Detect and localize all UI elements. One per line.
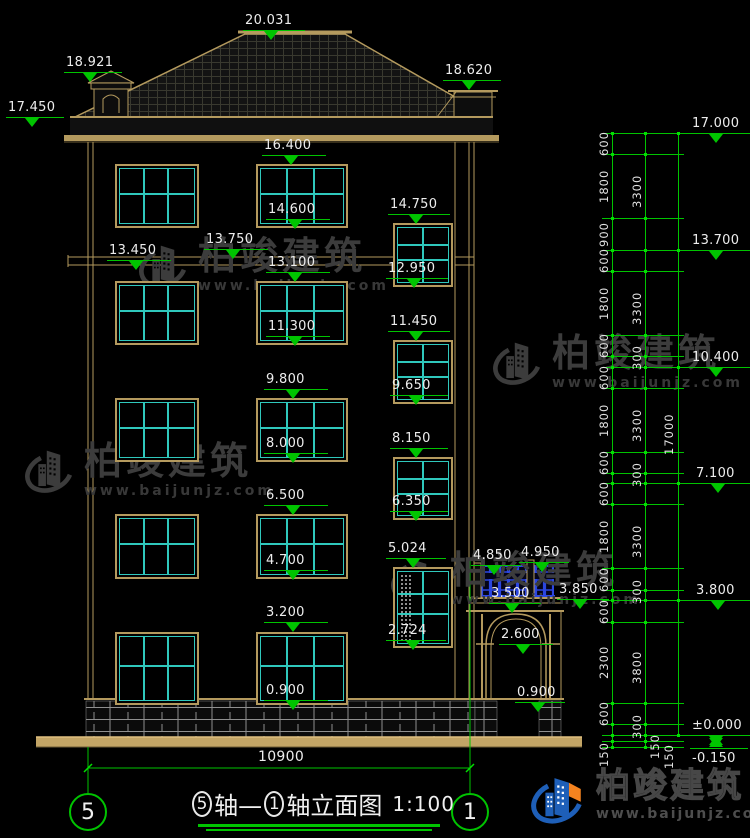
elevation-marker-triangle (573, 600, 587, 609)
dim-chain-tick (602, 590, 684, 591)
overall-width-dim-label: 10900 (258, 750, 304, 764)
window-glazing (260, 168, 344, 224)
dim-segment-label: 150 (648, 724, 662, 769)
dim-segment-label: 900 (597, 212, 611, 257)
window-mullion (286, 169, 288, 223)
dim-tick-dot (611, 599, 614, 602)
dim-segment-label: 600 (597, 121, 611, 166)
large-window (256, 281, 348, 345)
elevation-marker-triangle (409, 332, 423, 341)
window-transom (261, 193, 343, 195)
elevation-marker-line (266, 219, 330, 220)
window-mullion (143, 519, 145, 574)
title-scale: 1:100 (392, 792, 455, 816)
window-transom (120, 427, 194, 429)
elevation-marker-line (386, 640, 446, 641)
elevation-marker-line (690, 735, 748, 736)
watermark: 柏竣建筑www.baijunjz.com (390, 550, 641, 608)
elevation-marker-triangle (535, 563, 549, 572)
dim-chain-tick (602, 622, 684, 623)
dim-chain-tick (602, 154, 684, 155)
window-glazing (119, 518, 195, 575)
dim-chain-tick (602, 724, 684, 725)
dim-tick-dot (611, 217, 614, 220)
watermark: 柏竣建筑www.baijunjz.com (24, 441, 275, 499)
window-transom (398, 493, 448, 495)
watermark-url: www.baijunjz.com (450, 592, 641, 608)
elevation-marker-line (264, 453, 328, 454)
balcony-balustrade (478, 566, 554, 597)
elevation-marker-value: 8.150 (392, 432, 431, 446)
dim-tick-dot (677, 482, 680, 485)
large-window (256, 398, 348, 462)
elevation-marker-triangle (407, 279, 421, 288)
dim-segment-label: 600 (597, 471, 611, 516)
elevation-marker-value: 11.300 (268, 320, 315, 334)
dim-chain-vertical (678, 133, 679, 735)
elevation-marker-value: 20.031 (245, 14, 292, 28)
window-mullion (286, 519, 288, 574)
watermark-icon (24, 441, 78, 499)
dim-tick-dot (611, 734, 614, 737)
eave-fascia (70, 117, 493, 136)
dim-segment-label: 300 (630, 452, 644, 497)
dim-tick-dot (611, 472, 614, 475)
dim-tick-dot (644, 249, 647, 252)
elevation-marker-line (262, 155, 326, 156)
dim-chain-tick (602, 504, 684, 505)
elevation-marker-triangle (286, 571, 300, 580)
dim-segment-label: 600 (597, 355, 611, 400)
elevation-marker-line (6, 117, 64, 118)
elevation-marker-triangle (25, 118, 39, 127)
railing-post-left (474, 563, 481, 598)
title-underline-1 (198, 824, 440, 827)
right-roof-turret (454, 92, 492, 117)
window-transom (261, 427, 343, 429)
small-window (393, 567, 453, 648)
dim-tick-dot (644, 621, 647, 624)
dim-tick-dot (644, 355, 647, 358)
dim-chain-tick (602, 741, 684, 742)
window-mullion (313, 403, 315, 457)
window-glazing (260, 402, 344, 458)
dim-segment-label: 1800 (597, 158, 611, 214)
window-transom (398, 613, 448, 615)
window-glazing (119, 285, 195, 341)
elevation-marker-triangle (288, 220, 302, 229)
elevation-marker-line (264, 700, 328, 701)
dim-segment-label: 1800 (597, 508, 611, 564)
elevation-marker-triangle (83, 73, 97, 82)
large-window (256, 632, 348, 705)
chimney-cap (88, 71, 134, 83)
window-glazing (119, 402, 195, 458)
elevation-marker-value: 7.100 (696, 467, 735, 481)
dim-tick-dot (644, 482, 647, 485)
elevation-marker-line (690, 748, 748, 749)
dim-tick-dot (677, 599, 680, 602)
dim-tick-dot (677, 734, 680, 737)
elevation-marker-line (243, 30, 305, 31)
elevation-marker-value: 16.400 (264, 139, 311, 153)
drawing-title: 5 轴— 1 轴立面图 1:100 (190, 786, 455, 821)
stone-base (86, 701, 475, 737)
watermark-name: 柏竣建筑 (84, 441, 275, 481)
elevation-marker-value: 8.000 (266, 437, 305, 451)
window-mullion (143, 169, 145, 223)
window-mullion (313, 519, 315, 574)
window-mullion (167, 403, 169, 457)
small-window (393, 340, 453, 404)
baijun-logo-icon (530, 768, 588, 830)
elevation-marker-line (264, 622, 328, 623)
title-text-mid: 轴— (214, 786, 262, 821)
large-window (115, 632, 199, 705)
railing-post-right (527, 560, 534, 598)
elevation-marker-triangle (286, 623, 300, 632)
elevation-marker-value: 17.000 (692, 117, 739, 131)
elevation-marker-line (264, 570, 328, 571)
dim-segment-label: 3300 (630, 163, 644, 219)
dim-segment-label: 1800 (597, 392, 611, 448)
chimney-body (94, 89, 128, 117)
window-glazing (397, 344, 449, 400)
elevation-marker-value: 18.620 (445, 64, 492, 78)
dim-segment-label: 3300 (630, 280, 644, 336)
dim-tick-dot (644, 217, 647, 220)
axis-bubble-5: 5 (69, 793, 107, 831)
elevation-marker-line (388, 214, 450, 215)
elevation-marker-value: 14.600 (268, 203, 315, 217)
elevation-marker-value: 3.500 (491, 587, 530, 601)
window-glazing (397, 461, 449, 516)
window-mullion (313, 637, 315, 700)
window-mullion (167, 519, 169, 574)
dim-chain-tick (602, 367, 750, 368)
elevation-marker-value: 3.850 (559, 583, 598, 597)
elevation-marker-value: 9.800 (266, 373, 305, 387)
dim-tick-dot (644, 334, 647, 337)
elevation-marker-line (515, 702, 565, 703)
elevation-marker-triangle (709, 736, 723, 745)
dim-tick-dot (611, 249, 614, 252)
window-glazing (260, 636, 344, 701)
large-window (115, 164, 199, 228)
window-mullion (422, 462, 424, 515)
elevation-marker-value: 5.024 (388, 542, 427, 556)
elevation-marker-value: 6.500 (266, 489, 305, 503)
watermark-icon (138, 236, 192, 294)
elevation-marker-line (694, 483, 748, 484)
window-transom (261, 543, 343, 545)
elevation-marker-value: 18.921 (66, 56, 113, 70)
watermark-url: www.baijunjz.com (552, 375, 743, 391)
window-mullion (286, 286, 288, 340)
porch-columns (482, 614, 550, 698)
elevation-marker-line (390, 395, 448, 396)
elevation-marker-triangle (487, 566, 501, 575)
large-window (256, 514, 348, 579)
dim-segment-label: 17000 (662, 401, 676, 468)
dim-tick-dot (644, 366, 647, 369)
elevation-marker-value: 6.350 (392, 495, 431, 509)
dim-segment-label: 600 (597, 440, 611, 485)
dim-tick-dot (644, 472, 647, 475)
watermark-name: 柏竣建筑 (198, 236, 389, 276)
elevation-marker-triangle (409, 396, 423, 405)
window-transom (261, 310, 343, 312)
elevation-marker-line (690, 367, 748, 368)
elevation-marker-line (386, 558, 446, 559)
window-transom (120, 310, 194, 312)
dim-tick-dot (611, 621, 614, 624)
dim-tick-dot (611, 740, 614, 743)
window-mullion (143, 403, 145, 457)
elevation-marker-value: 4.950 (521, 546, 560, 560)
elevation-marker-triangle (286, 454, 300, 463)
dim-segment-label: 300 (630, 704, 644, 749)
elevation-marker-value: 0.900 (517, 686, 556, 700)
elevation-marker-value: 17.450 (8, 101, 55, 115)
elevation-marker-line (557, 599, 609, 600)
window-glazing (260, 518, 344, 575)
elevation-marker-value: 4.850 (473, 549, 512, 563)
dim-chain-vertical (645, 133, 646, 747)
dim-chain-tick (602, 133, 750, 134)
dim-segment-label: 2300 (597, 634, 611, 690)
dim-tick-dot (677, 366, 680, 369)
elevation-marker-line (390, 511, 448, 512)
dim-chain-tick (602, 600, 750, 601)
dim-tick-dot (611, 567, 614, 570)
elevation-marker-value: ±0.000 (692, 719, 742, 733)
pedestal-right (539, 701, 561, 737)
window-mullion (167, 286, 169, 340)
elevation-marker-triangle (531, 703, 545, 712)
elevation-marker-value: 4.700 (266, 554, 305, 568)
dim-chain-tick (602, 356, 684, 357)
dim-segment-label: 600 (597, 557, 611, 602)
building-structure-drawing (0, 0, 750, 838)
dim-tick-dot (611, 355, 614, 358)
window-transom (120, 543, 194, 545)
dim-tick-dot (644, 740, 647, 743)
dim-tick-dot (611, 702, 614, 705)
elevation-marker-triangle (286, 701, 300, 710)
entrance-arch (486, 614, 546, 698)
dimension-chain-layer: 6001800900600180060030060018006003006001… (0, 0, 750, 838)
watermark-icon (492, 333, 546, 391)
elevation-marker-triangle (709, 738, 723, 747)
dim-segment-label: 1800 (597, 275, 611, 331)
large-window (256, 164, 348, 228)
watermark: 柏竣建筑www.baijunjz.com (138, 236, 389, 294)
elevation-marker-triangle (264, 31, 278, 40)
watermark-name: 柏竣建筑 (450, 550, 641, 590)
elevation-marker-triangle (711, 484, 725, 493)
dim-tick-dot (677, 132, 680, 135)
elevation-marker-value: -0.150 (692, 752, 736, 766)
elevation-marker-triangle (709, 134, 723, 143)
dim-tick-dot (611, 334, 614, 337)
watermarks-layer: 柏竣建筑www.baijunjz.com柏竣建筑www.baijunjz.com… (0, 0, 750, 838)
elevation-marker-line (107, 260, 171, 261)
main-roof (75, 34, 490, 117)
elevation-marker-line (690, 133, 748, 134)
dim-tick-dot (644, 746, 647, 749)
elevation-marker-line (64, 72, 122, 73)
dim-chain-tick (602, 271, 684, 272)
elevation-markers-layer: 20.03118.92117.45018.62016.40014.60013.7… (0, 0, 750, 838)
elevation-marker-line (443, 80, 501, 81)
dim-tick-dot (677, 249, 680, 252)
title-axis-end-bubble: 1 (264, 791, 284, 817)
window-transom (398, 259, 448, 261)
window-mullion (143, 286, 145, 340)
dim-segment-label: 600 (597, 323, 611, 368)
watermark: 柏竣建筑www.baijunjz.com (492, 333, 743, 391)
elevation-marker-value: 13.750 (206, 233, 253, 247)
dim-segment-label: 600 (597, 589, 611, 634)
watermark-url: www.baijunjz.com (198, 278, 389, 294)
elevation-marker-triangle (409, 215, 423, 224)
elevation-marker-triangle (226, 250, 240, 259)
dim-chain-tick (602, 250, 750, 251)
window-mullion (286, 637, 288, 700)
window-transom (398, 361, 448, 363)
window-mullion (167, 637, 169, 700)
dim-tick-dot (644, 702, 647, 705)
elevation-marker-line (690, 250, 748, 251)
dim-tick-dot (644, 153, 647, 156)
elevation-marker-value: 13.700 (692, 234, 739, 248)
dim-chain-tick (602, 335, 684, 336)
logo-company-name: 柏竣建筑 (596, 768, 750, 804)
elevation-marker-line (266, 336, 330, 337)
elevation-marker-triangle (284, 156, 298, 165)
dim-tick-dot (611, 451, 614, 454)
dim-tick-dot (611, 366, 614, 369)
dim-chain-vertical (612, 133, 613, 747)
elevation-marker-line (266, 272, 330, 273)
window-mullion (313, 286, 315, 340)
window-transom (120, 665, 194, 667)
elevation-marker-line (519, 562, 569, 563)
elevation-marker-triangle (288, 337, 302, 346)
window-transom (261, 665, 343, 667)
elevation-marker-value: 10.400 (692, 351, 739, 365)
window-mullion (286, 403, 288, 457)
dim-segment-label: 3300 (630, 513, 644, 569)
dim-chain-tick (602, 388, 684, 389)
window-transom (398, 244, 448, 246)
dim-chain-tick (602, 452, 684, 453)
elevation-marker-triangle (516, 645, 530, 654)
axis-bubble-1: 1 (451, 793, 489, 831)
dim-tick-dot (644, 567, 647, 570)
dim-tick-dot (644, 270, 647, 273)
window-transom (398, 376, 448, 378)
elevation-marker-triangle (709, 368, 723, 377)
title-axis-start-bubble: 5 (192, 791, 212, 817)
dim-tick-dot (611, 482, 614, 485)
logo-website-url: www.baijunjz.com (596, 806, 750, 822)
watermark-icon (390, 550, 444, 608)
wall-edges (88, 142, 474, 700)
window-mullion (422, 228, 424, 282)
large-window (115, 398, 199, 462)
elevation-marker-triangle (409, 449, 423, 458)
elevation-marker-value: 14.750 (390, 198, 437, 212)
dim-segment-label: 300 (630, 335, 644, 380)
elevation-marker-triangle (406, 641, 420, 650)
window-transom (398, 478, 448, 480)
dim-segment-label: 300 (630, 569, 644, 614)
dim-tick-dot (644, 734, 647, 737)
elevation-marker-triangle (286, 506, 300, 515)
elevation-marker-line (694, 600, 748, 601)
dim-chain-tick (602, 483, 750, 484)
dim-chain-tick (602, 703, 684, 704)
window-vent-texture (400, 574, 412, 641)
window-glazing (260, 285, 344, 341)
floor-band (68, 255, 474, 267)
watermark-name: 柏竣建筑 (552, 333, 743, 373)
elevation-marker-line (388, 331, 450, 332)
baijun-logo: 柏竣建筑 www.baijunjz.com (530, 768, 750, 830)
elevation-marker-line (489, 603, 541, 604)
elevation-marker-line (471, 565, 521, 566)
elevation-marker-triangle (288, 273, 302, 282)
ground-line (36, 737, 582, 747)
window-glazing (119, 636, 195, 701)
elevation-marker-line (264, 505, 328, 506)
elevation-marker-triangle (709, 251, 723, 260)
elevation-drawing-canvas: 柏竣建筑www.baijunjz.com柏竣建筑www.baijunjz.com… (0, 0, 750, 838)
elevation-marker-triangle (709, 738, 723, 747)
dim-chain-tick (602, 473, 684, 474)
elevation-marker-value: 11.450 (390, 315, 437, 329)
dim-tick-dot (644, 132, 647, 135)
dim-chain-tick (602, 735, 750, 736)
dim-chain-tick (602, 568, 684, 569)
elevation-marker-triangle (406, 559, 420, 568)
elevation-marker-triangle (505, 604, 519, 613)
elevation-marker-triangle (462, 81, 476, 90)
elevation-marker-value: 9.650 (392, 379, 431, 393)
elevation-marker-value: 12.950 (388, 262, 435, 276)
elevation-marker-value: 3.800 (696, 584, 735, 598)
windows-layer (0, 0, 750, 838)
small-window (393, 457, 453, 520)
window-mullion (167, 169, 169, 223)
dim-chain-tick (602, 218, 684, 219)
dim-tick-dot (611, 270, 614, 273)
dim-tick-dot (611, 723, 614, 726)
elevation-marker-value: 2.724 (388, 624, 427, 638)
window-mullion (313, 169, 315, 223)
dim-segment-label: 600 (597, 238, 611, 283)
elevation-marker-value: 2.600 (501, 628, 540, 642)
dim-segment-label: 600 (597, 691, 611, 736)
window-transom (398, 593, 448, 595)
small-window (393, 223, 453, 287)
dim-tick-dot (644, 589, 647, 592)
elevation-marker-triangle (129, 261, 143, 270)
elevation-marker-triangle (286, 390, 300, 399)
title-text-tail: 轴立面图 (286, 786, 382, 821)
